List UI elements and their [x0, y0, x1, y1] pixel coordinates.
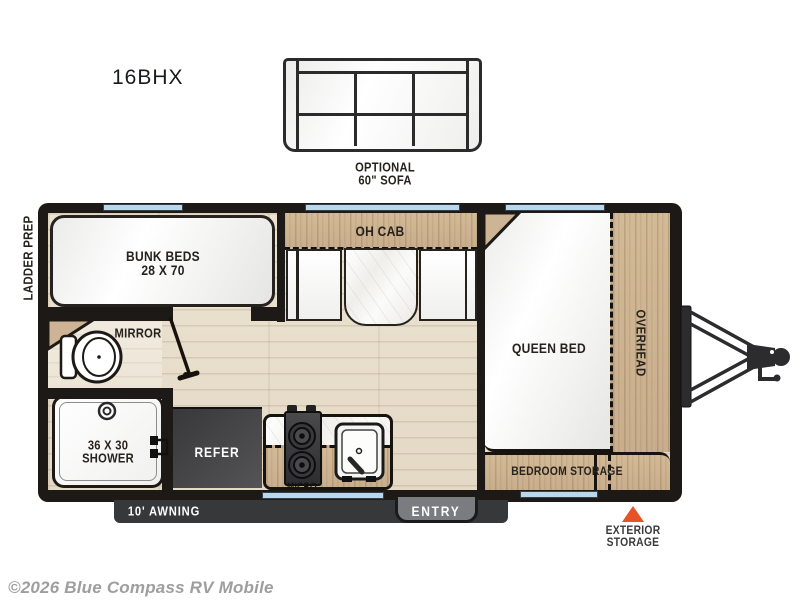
window-bedroom-front: [505, 204, 605, 211]
ladder-prep-label: LADDER PREP: [21, 216, 36, 301]
queen-bed: [484, 213, 610, 452]
exterior-storage-marker: [622, 506, 644, 522]
copyright-text: ©2026 Blue Compass RV Mobile: [8, 578, 274, 598]
entry-label: ENTRY: [412, 503, 461, 519]
bedroom-storage-label: BEDROOM STORAGE: [511, 464, 622, 478]
window-kitchen: [262, 492, 384, 499]
sofa-cushion-divider-v2: [412, 74, 415, 146]
bench-backrest-line: [296, 251, 299, 319]
sofa-armrest-left: [286, 61, 299, 149]
bench-backrest-line: [465, 251, 468, 319]
mirror-label: MIRROR: [115, 326, 162, 341]
kitchen-counter: [263, 414, 393, 490]
model-title: 16BHX: [112, 66, 184, 90]
bunk-beds-label-line2: 28 X 70: [141, 262, 184, 278]
stove-cooktop: [284, 411, 322, 486]
optional-sofa: [283, 58, 482, 152]
shower-label-line2: SHOWER: [82, 451, 134, 466]
window-bunk: [103, 204, 183, 211]
micro-label: MICRO: [287, 482, 317, 493]
wall-shower-side: [162, 388, 173, 490]
sofa-cushion-divider-v1: [354, 74, 357, 146]
window-bedroom-rear: [520, 491, 598, 498]
hitch-icon: [681, 306, 790, 407]
refer-label: REFER: [194, 444, 239, 460]
window-dinette: [305, 204, 460, 211]
sofa-backrest: [299, 61, 466, 74]
wall-bunk-dinette: [277, 213, 285, 322]
sofa-armrest-right: [466, 61, 479, 149]
awning-label: 10' AWNING: [128, 504, 200, 519]
dinette-table: [344, 248, 418, 326]
optional-sofa-label-line2: 60" SOFA: [358, 173, 411, 188]
wall-bath-front: [48, 307, 173, 321]
dinette-bench-right: [419, 249, 477, 321]
exterior-storage-label-line2: STORAGE: [607, 535, 660, 549]
sofa-cushion-divider-h: [299, 113, 466, 116]
wall-shower-top: [48, 388, 172, 399]
overhead-label: OVERHEAD: [634, 310, 649, 377]
wall-bath-stub: [251, 307, 285, 321]
dinette-bench-left: [286, 249, 342, 321]
queen-bed-label: QUEEN BED: [512, 340, 586, 356]
floorplan-page: 16BHX OPTIONAL 60" SOFA: [0, 0, 800, 600]
wall-bedroom: [477, 213, 485, 490]
oh-cab-label: OH CAB: [355, 223, 404, 239]
